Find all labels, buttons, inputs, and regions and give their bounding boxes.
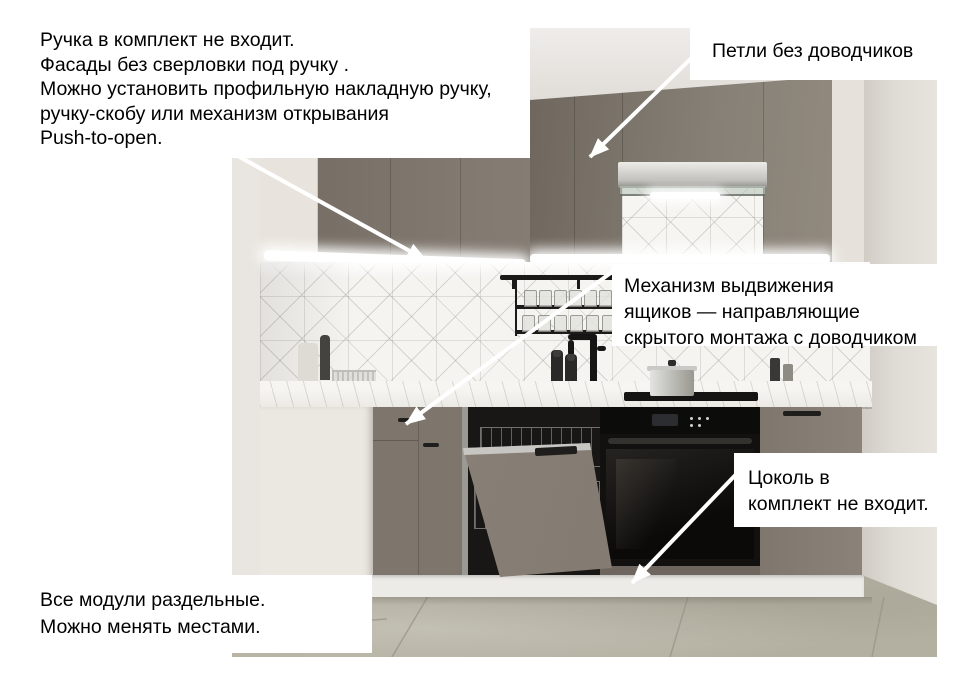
note-line: ручку-скобу или механизм открывания: [40, 102, 530, 127]
cabinet-seam: [373, 440, 418, 441]
base-cabinet-side-panel: [260, 407, 373, 603]
glass-jar: [569, 290, 582, 307]
range-hood: [618, 162, 767, 188]
note-line: Все модули раздельные.: [40, 587, 372, 614]
glass-jar: [522, 315, 535, 332]
note-plinth: Цоколь в комплект не входит.: [734, 453, 970, 527]
oven-button: [706, 417, 709, 420]
oven-door: [606, 449, 754, 559]
note-line: Цоколь в: [748, 465, 970, 491]
pot-knob: [668, 360, 676, 366]
note-line: скрытого монтажа с доводчиком: [624, 325, 968, 351]
note-line: ящиков — направляющие: [624, 299, 968, 325]
annotated-kitchen-image: Ручка в комплект не входит. Фасады без с…: [0, 0, 970, 686]
note-line: Механизм выдвижения: [624, 273, 968, 299]
note-line: Push-to-open.: [40, 126, 530, 151]
glass-jar: [539, 290, 552, 307]
glass-jar: [599, 290, 612, 307]
range-hood-light: [650, 192, 720, 199]
oven-button: [690, 417, 693, 420]
oven-button: [690, 424, 693, 427]
serving-board: [298, 343, 318, 382]
note-line: Ручка в комплект не входит.: [40, 28, 530, 53]
note-handle: Ручка в комплект не входит. Фасады без с…: [0, 0, 530, 158]
cabinet-seam: [418, 407, 419, 575]
under-oven-strip: [600, 566, 760, 575]
base-corner-cabinet: [373, 407, 462, 575]
hood-backsplash-tiles: [622, 188, 763, 262]
note-drawer-mechanism: Механизм выдвижения ящиков — направляющи…: [612, 264, 968, 346]
oven-handle: [608, 438, 752, 444]
note-hinges: Петли без доводчиков: [690, 24, 970, 80]
countertop: [260, 381, 872, 409]
glass-jar: [554, 290, 567, 307]
glass-jar: [570, 315, 583, 332]
faucet-spout: [568, 334, 597, 340]
dishwasher-cavity: [462, 407, 612, 575]
drawer-handle: [783, 411, 821, 416]
oven-display: [652, 414, 678, 426]
note-line: Можно установить профильную накладную ру…: [40, 77, 530, 102]
note-line: Можно менять местами.: [40, 614, 372, 641]
upper-cabinets-front: [530, 58, 864, 262]
cabinet-seam: [574, 58, 575, 262]
note-modules: Все модули раздельные. Можно менять мест…: [0, 575, 372, 653]
glass-jar: [524, 290, 537, 307]
oven-control-panel: [600, 407, 760, 434]
tile-pattern: [622, 188, 763, 262]
dishwasher-frame: [462, 407, 468, 575]
glass-jar: [584, 290, 597, 307]
note-line: комплект не входит.: [748, 491, 970, 517]
cabinet-seam: [763, 58, 764, 262]
upper-cabinet-side-panel: [832, 58, 864, 262]
note-line: Петли без доводчиков: [712, 39, 970, 64]
glass-jar: [538, 315, 551, 332]
oven-button: [698, 424, 701, 427]
glass-jar: [554, 315, 567, 332]
dishwasher-rack: [474, 481, 600, 529]
cooking-pot: [650, 370, 694, 396]
rail-hook: [577, 279, 580, 289]
oven-button: [698, 417, 701, 420]
glass-jar: [586, 315, 599, 332]
drawer-handle: [398, 418, 414, 422]
note-line: Фасады без сверловки под ручку .: [40, 53, 530, 78]
bottle: [320, 335, 330, 380]
door-handle: [423, 443, 439, 447]
faucet-lever: [597, 346, 606, 351]
oven-door-reflection: [616, 459, 676, 549]
